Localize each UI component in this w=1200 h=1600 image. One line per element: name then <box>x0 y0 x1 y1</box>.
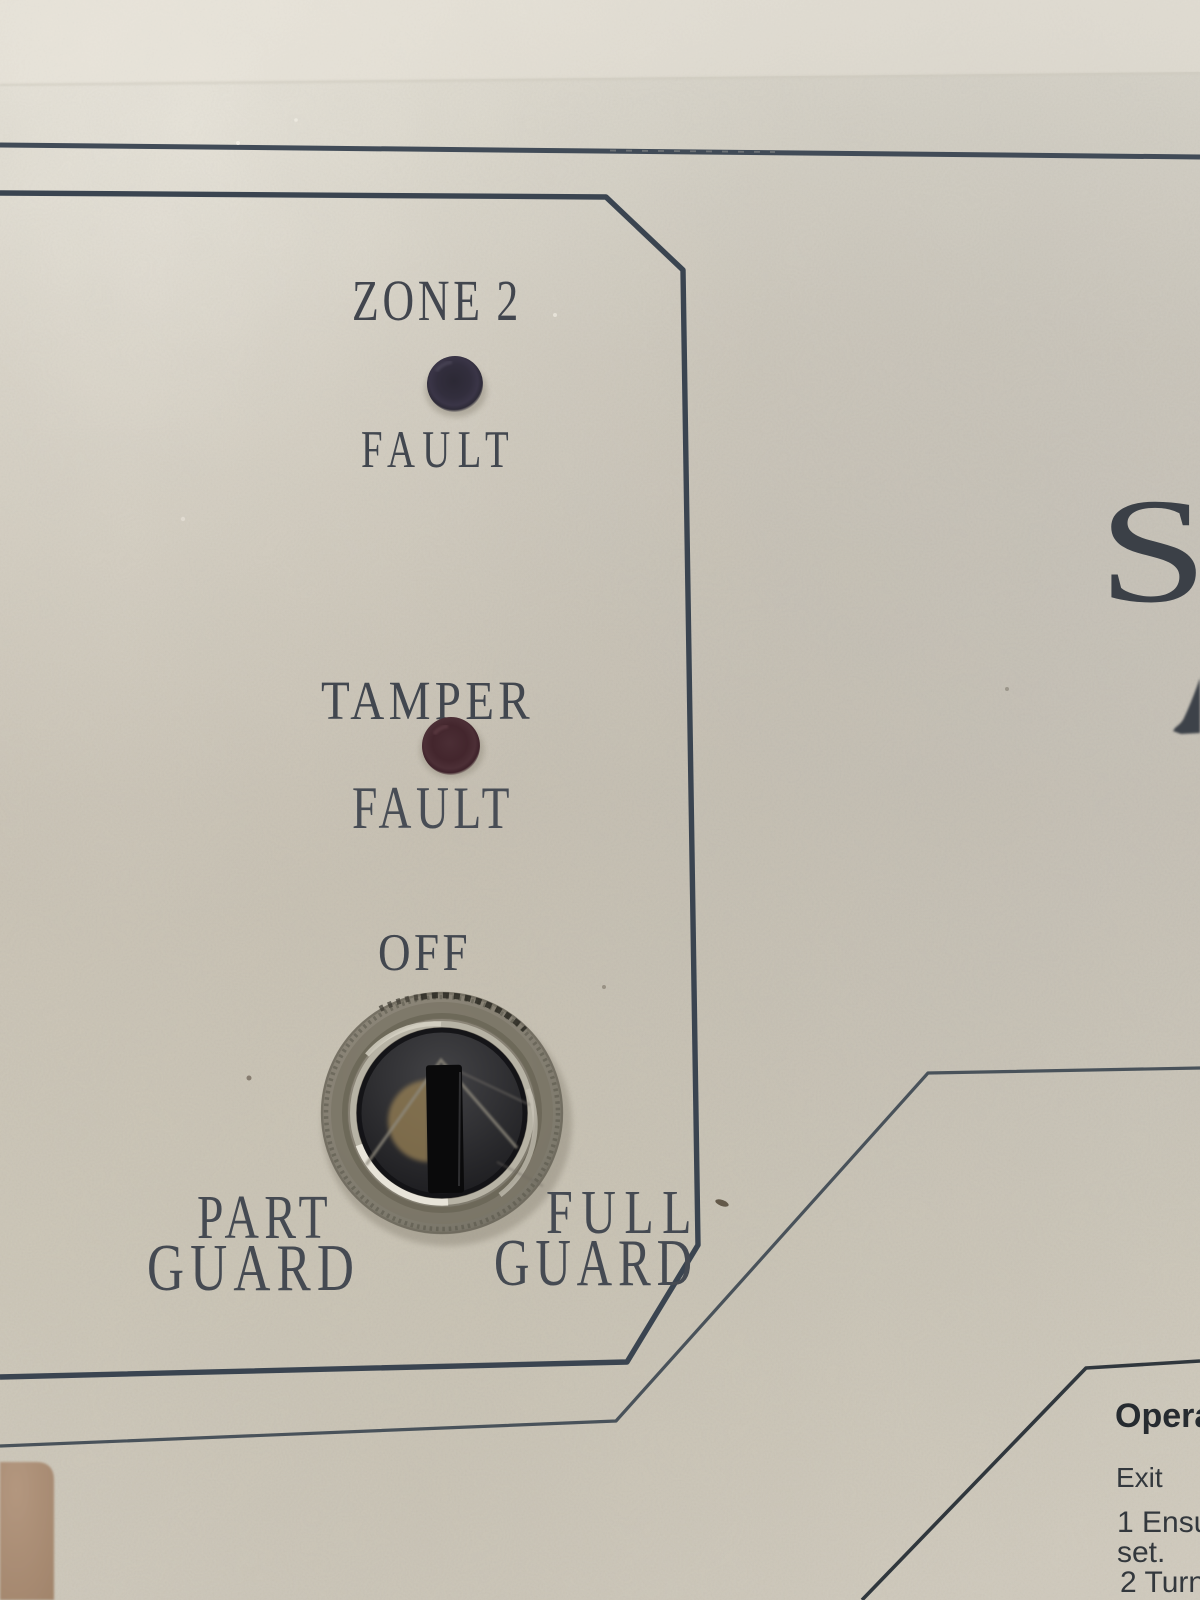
svg-text:GUARD: GUARD <box>147 1231 360 1305</box>
svg-text:TAMPER: TAMPER <box>321 670 534 731</box>
svg-text:FAULT: FAULT <box>352 775 514 841</box>
svg-text:set.: set. <box>1117 1536 1165 1569</box>
svg-text:FAULT: FAULT <box>361 421 516 479</box>
svg-text:S: S <box>1098 467 1200 634</box>
svg-text:OFF: OFF <box>378 924 471 982</box>
svg-text:2 Turn: 2 Turn <box>1120 1566 1200 1599</box>
svg-text:GUARD: GUARD <box>494 1226 698 1300</box>
svg-text:Operat: Operat <box>1115 1397 1200 1435</box>
svg-text:ZONE 2: ZONE 2 <box>352 268 522 333</box>
svg-text:Exit: Exit <box>1116 1462 1163 1493</box>
svg-text:1 Ensu: 1 Ensu <box>1117 1506 1200 1539</box>
